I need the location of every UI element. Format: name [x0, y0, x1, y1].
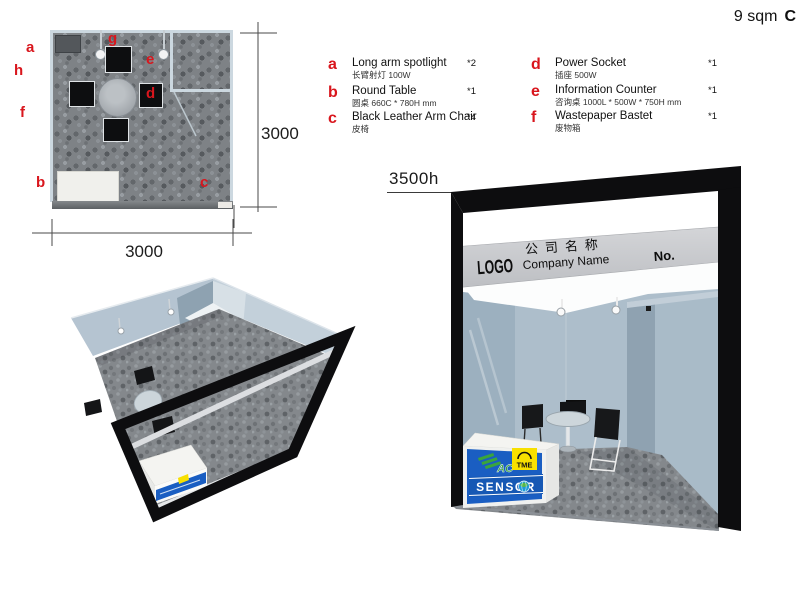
- info-counter: AC TME SENSOR: [463, 433, 559, 508]
- frame-left-post: [451, 192, 463, 507]
- plan-dimensions: 3000 3000: [0, 0, 330, 280]
- legend-item: f *1 Wastepaper Bastet 废物箱: [531, 110, 717, 133]
- legend-qty: *1: [708, 58, 717, 69]
- legend-spec: 插座 500W: [555, 70, 626, 80]
- legend-letter: a: [328, 57, 352, 80]
- area-label: 9 sqm: [734, 8, 778, 25]
- legend-qty: *1: [708, 111, 717, 122]
- counter-side: [546, 444, 559, 503]
- legend-item: d *1 Power Socket 插座 500W: [531, 57, 717, 80]
- frame-top-bar: [451, 166, 741, 213]
- legend-letter: e: [531, 84, 555, 107]
- legend-item: c *4 Black Leather Arm Chair 皮椅: [328, 111, 476, 134]
- legend-spec: 圆桌 660C * 780H mm: [352, 98, 437, 108]
- booth-type: C: [784, 8, 796, 25]
- legend-qty: *2: [467, 58, 476, 69]
- dimension-label-height: 3000: [261, 124, 299, 143]
- booth-size-tag: 9 sqmC: [700, 8, 796, 26]
- legend-name: Power Socket: [555, 57, 626, 69]
- legend-name: Black Leather Arm Chair: [352, 111, 477, 123]
- chair: [522, 404, 543, 429]
- plan-door-swing-line: [174, 92, 196, 136]
- legend-qty: *4: [467, 112, 476, 123]
- legend-letter: c: [328, 111, 352, 134]
- round-table: [546, 412, 590, 427]
- ac-logo-text: AC: [496, 463, 514, 475]
- frame-right-post: [718, 187, 741, 531]
- legend-spec: 长臂射灯 100W: [352, 70, 447, 80]
- legend-name: Long arm spotlight: [352, 57, 447, 69]
- legend-name: Information Counter: [555, 84, 681, 96]
- chair: [594, 408, 620, 440]
- legend-name: Round Table: [352, 85, 437, 97]
- legend-letter: f: [531, 110, 555, 133]
- legend-item: b *1 Round Table 圆桌 660C * 780H mm: [328, 85, 476, 108]
- booth-design-sheet: a h f b g e d c 3000 3000 a *2 Long arm …: [0, 0, 800, 600]
- iso-chair: [84, 399, 102, 416]
- legend-qty: *1: [708, 85, 717, 96]
- partition-fitting: [646, 306, 651, 311]
- legend-spec: 咨询桌 1000L * 500W * 750H mm: [555, 97, 681, 107]
- dimension-label-width: 3000: [125, 242, 163, 261]
- legend-qty: *1: [467, 86, 476, 97]
- legend-spec: 皮椅: [352, 124, 477, 134]
- tme-logo-text: TME: [517, 461, 533, 470]
- legend-item: a *2 Long arm spotlight 长臂射灯 100W: [328, 57, 476, 80]
- iso-view: [55, 260, 365, 560]
- partition-side-wall: [627, 299, 655, 458]
- legend-name: Wastepaper Bastet: [555, 110, 652, 122]
- front-view: AC TME SENSOR LOGO 公司名称 Company Name No.: [380, 160, 760, 600]
- legend-spec: 废物箱: [555, 123, 652, 133]
- legend-item: e *1 Information Counter 咨询桌 1000L * 500…: [531, 84, 717, 107]
- legend-letter: d: [531, 57, 555, 80]
- dimension-lines: [32, 22, 277, 246]
- legend: a *2 Long arm spotlight 长臂射灯 100W b *1 R…: [328, 55, 720, 140]
- table-base: [560, 446, 576, 452]
- fascia-logo-placeholder: LOGO: [477, 256, 514, 279]
- fascia-booth-no: No.: [653, 248, 675, 264]
- legend-letter: b: [328, 85, 352, 108]
